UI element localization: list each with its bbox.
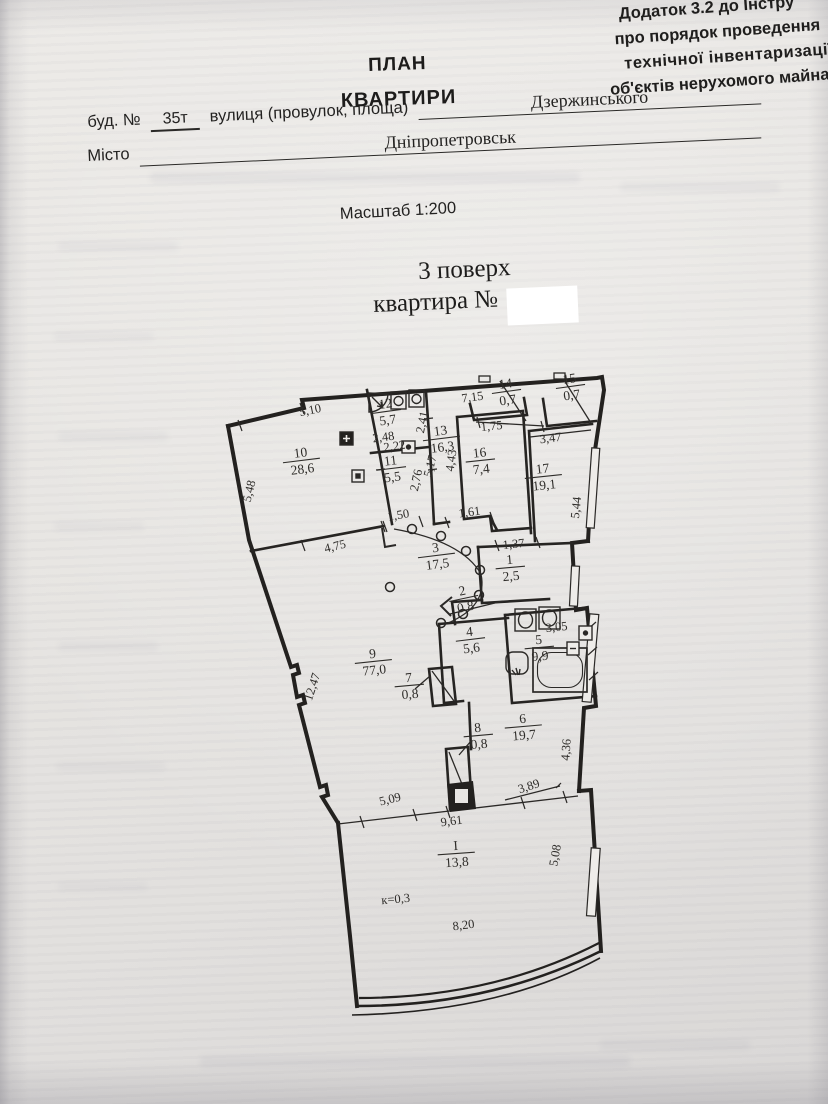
svg-text:5: 5 — [535, 632, 543, 648]
svg-text:5,7: 5,7 — [378, 411, 397, 428]
svg-text:19,1: 19,1 — [532, 476, 557, 493]
svg-text:14: 14 — [498, 375, 514, 392]
wall-box-icon — [567, 642, 579, 655]
dimension-label: 5,44 — [568, 495, 584, 519]
dimension-label: 3,05 — [545, 619, 568, 635]
scanned-document-page: Додаток 3.2 до Інстру про порядок провед… — [0, 0, 828, 1104]
svg-text:17,5: 17,5 — [425, 555, 451, 573]
dimension-label: к=0,3 — [381, 891, 411, 907]
svg-text:0,8: 0,8 — [456, 598, 476, 616]
electric-panel-icon — [340, 432, 353, 445]
svg-text:9: 9 — [368, 646, 377, 662]
svg-text:13: 13 — [433, 422, 448, 439]
svg-text:17: 17 — [535, 460, 550, 476]
svg-text:9,9: 9,9 — [531, 648, 549, 664]
room-label: I13,8 — [437, 837, 476, 871]
room-label: 1028,6 — [281, 443, 322, 479]
dimension-label: 1,75 — [480, 418, 503, 434]
dimension-label: 4,75 — [323, 537, 348, 556]
dimension-label: 9,61 — [440, 813, 463, 830]
svg-text:I: I — [453, 838, 459, 853]
dimension-label: 4,36 — [558, 738, 573, 761]
svg-text:2: 2 — [457, 583, 467, 599]
svg-text:12: 12 — [378, 395, 393, 412]
svg-text:77,0: 77,0 — [362, 661, 387, 678]
panel-icon — [352, 470, 364, 482]
svg-text:1: 1 — [506, 552, 514, 568]
dimension-label: 8,20 — [452, 917, 475, 934]
balcony-railing — [352, 943, 601, 1015]
svg-text:8: 8 — [474, 720, 482, 736]
svg-text:11: 11 — [383, 452, 398, 468]
svg-text:0,7: 0,7 — [498, 391, 517, 408]
dimension-label: 1,37 — [502, 536, 525, 552]
svg-text:5,5: 5,5 — [383, 468, 402, 485]
svg-text:4: 4 — [465, 624, 474, 640]
room-label: 619,7 — [503, 709, 543, 744]
room-label: 150,7 — [554, 369, 587, 404]
svg-text:13,8: 13,8 — [445, 854, 470, 871]
room-label: 977,0 — [353, 644, 393, 679]
room-label: 70,8 — [393, 669, 425, 703]
dimension-label: 5,08 — [546, 843, 564, 867]
room-label: 167,4 — [464, 444, 497, 478]
svg-text:5,6: 5,6 — [462, 639, 481, 656]
dimension-label: 4,43 — [443, 449, 460, 473]
svg-text:10: 10 — [293, 444, 308, 461]
room-label: 140,7 — [490, 374, 523, 409]
dimension-label: 12,47 — [301, 671, 323, 702]
svg-text:2,5: 2,5 — [502, 568, 520, 584]
svg-text:7,4: 7,4 — [472, 461, 491, 478]
svg-text:15: 15 — [562, 370, 578, 387]
room-label: 317,5 — [416, 538, 457, 574]
plan-labels: 1028,6125,7115,51316,3167,4140,7150,7171… — [240, 369, 588, 933]
facade-column — [447, 781, 476, 812]
dimension-label: 5,09 — [378, 790, 403, 809]
svg-text:19,7: 19,7 — [512, 726, 537, 743]
dimension-label: 1,50 — [386, 506, 410, 524]
svg-text:0,8: 0,8 — [470, 736, 488, 752]
dimension-label: 5,48 — [240, 479, 259, 504]
room-label: 12,5 — [494, 551, 526, 585]
svg-text:16: 16 — [472, 444, 487, 460]
dimension-label: 3,47 — [539, 430, 562, 447]
dimension-label: 5,17 — [421, 454, 440, 479]
svg-text:0,7: 0,7 — [562, 386, 581, 403]
dimension-label: 7,15 — [461, 389, 485, 406]
svg-text:28,6: 28,6 — [290, 460, 316, 478]
svg-text:3: 3 — [431, 540, 440, 556]
floor-plan: 1028,6125,7115,51316,3167,4140,7150,7171… — [0, 0, 828, 1104]
svg-text:6: 6 — [519, 711, 527, 727]
svg-text:7: 7 — [405, 670, 413, 686]
dimension-label: 3,89 — [516, 776, 541, 796]
wall-box-icon — [579, 626, 592, 640]
svg-text:0,8: 0,8 — [401, 686, 419, 702]
room-label: 45,6 — [454, 622, 487, 657]
